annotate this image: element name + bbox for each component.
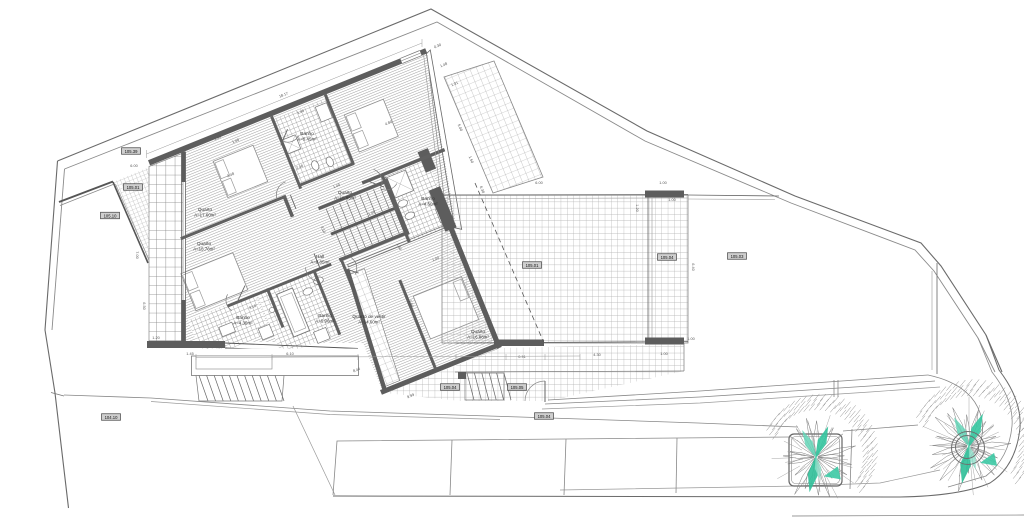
svg-text:Banho: Banho xyxy=(421,196,435,201)
svg-text:4.30: 4.30 xyxy=(593,353,600,357)
svg-text:6.10: 6.10 xyxy=(286,352,293,356)
svg-text:105.05: 105.05 xyxy=(511,385,524,390)
svg-text:Quarto: Quarto xyxy=(338,190,353,195)
svg-text:A=15.85m²: A=15.85m² xyxy=(334,196,356,201)
svg-text:1.00: 1.00 xyxy=(659,181,666,185)
svg-text:6.50: 6.50 xyxy=(142,302,146,309)
svg-text:1.20: 1.20 xyxy=(635,204,639,211)
svg-text:Quarto de vestir: Quarto de vestir xyxy=(352,314,386,319)
svg-text:A=15.76m²: A=15.76m² xyxy=(193,247,215,252)
svg-text:6.00: 6.00 xyxy=(130,164,137,168)
svg-text:A=5.45m²: A=5.45m² xyxy=(297,137,317,142)
svg-text:1.00: 1.00 xyxy=(687,337,694,341)
svg-text:Quarto: Quarto xyxy=(198,207,213,212)
svg-text:7.00: 7.00 xyxy=(135,251,139,258)
svg-text:Banho: Banho xyxy=(318,313,332,318)
svg-text:A=4.35m²: A=4.35m² xyxy=(233,321,253,326)
svg-text:105.10: 105.10 xyxy=(104,213,117,218)
svg-text:1.20: 1.20 xyxy=(152,336,159,340)
svg-text:Quarto: Quarto xyxy=(471,329,486,334)
svg-text:A=17.60m²: A=17.60m² xyxy=(194,213,216,218)
svg-text:A=5.96m²: A=5.96m² xyxy=(315,319,335,324)
svg-text:6.40: 6.40 xyxy=(691,263,695,270)
svg-text:105.01: 105.01 xyxy=(127,185,140,190)
svg-text:6.00: 6.00 xyxy=(535,181,542,185)
svg-text:Hall: Hall xyxy=(316,254,324,259)
svg-text:A=16.88m²: A=16.88m² xyxy=(467,335,489,340)
svg-text:105.04: 105.04 xyxy=(444,385,457,390)
svg-text:105.04: 105.04 xyxy=(538,414,551,419)
svg-text:A=8.85m²: A=8.85m² xyxy=(310,260,330,265)
svg-text:Banho: Banho xyxy=(236,315,250,320)
svg-text:1.00: 1.00 xyxy=(668,198,675,202)
svg-text:1.45: 1.45 xyxy=(186,352,193,356)
svg-text:A=14.60m²: A=14.60m² xyxy=(358,320,380,325)
svg-text:Quarto: Quarto xyxy=(197,241,212,246)
svg-text:105.04: 105.04 xyxy=(661,255,674,260)
svg-text:104.10: 104.10 xyxy=(105,415,118,420)
svg-text:105.01: 105.01 xyxy=(526,263,539,268)
svg-text:0.91: 0.91 xyxy=(518,355,525,359)
svg-text:105.03: 105.03 xyxy=(731,254,744,259)
svg-text:Banho: Banho xyxy=(300,131,314,136)
svg-text:1.00: 1.00 xyxy=(660,352,667,356)
svg-text:105.39: 105.39 xyxy=(125,149,138,154)
svg-text:A=4.60m²: A=4.60m² xyxy=(418,202,438,207)
